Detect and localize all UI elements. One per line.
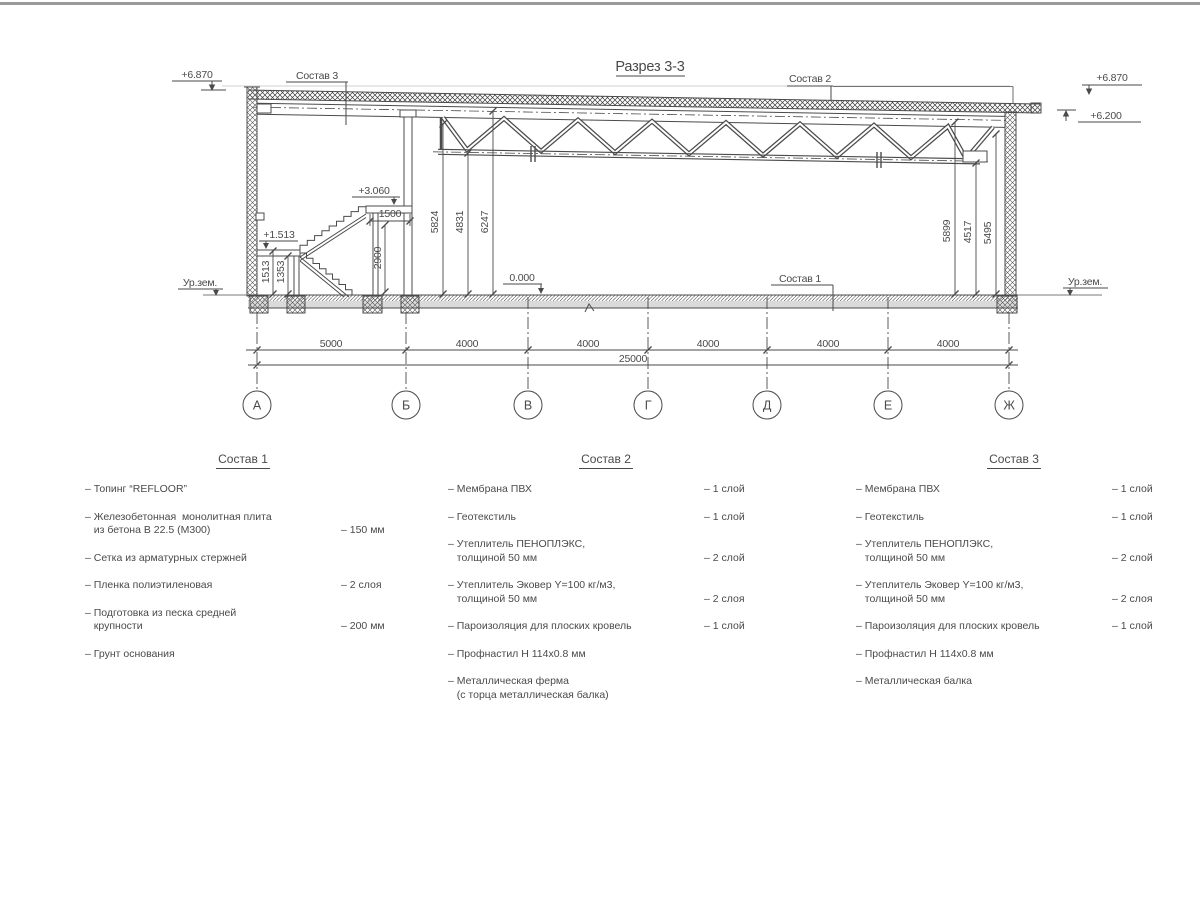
- composition-ref-label: Состав 3: [296, 70, 338, 82]
- spec-item-text: – Железобетонная монолитная плита из бет…: [85, 511, 341, 538]
- spec-item-value: – 200 мм: [341, 620, 385, 634]
- spec-item: – Топинг “REFLOOR”: [85, 483, 401, 497]
- section-drawing: Разрез 3-3: [0, 0, 1200, 448]
- elevation-label: +6.870: [1096, 72, 1128, 84]
- roof-truss: [433, 118, 993, 169]
- left-wall: [244, 87, 260, 296]
- spec-item-value: – 1 слой: [1112, 620, 1153, 634]
- composition-ref-label: Состав 1: [779, 273, 821, 285]
- spec-item-value: – 1 слой: [704, 620, 745, 634]
- spec-item: – Пароизоляция для плоских кровель– 1 сл…: [448, 620, 764, 634]
- spec-column-sostav2: Состав 2 – Мембрана ПВХ– 1 слой– Геотекс…: [448, 452, 764, 716]
- dimension-label: 4000: [577, 338, 600, 350]
- elevation-label: +6.200: [1090, 110, 1122, 122]
- axis-letter: Е: [884, 399, 892, 413]
- foundation-block: [997, 296, 1017, 313]
- spec-item-value: – 1 слой: [1112, 511, 1153, 525]
- spec-item-text: – Сетка из арматурных стержней: [85, 552, 341, 566]
- drawing-title: Разрез 3-3: [615, 59, 685, 76]
- lower-flight-steps: [300, 253, 352, 295]
- spec-item-text: – Металлическая ферма (с торца металличе…: [448, 675, 704, 702]
- spec-item: – Утеплитель ПЕНОПЛЭКС, толщиной 50 мм– …: [856, 538, 1172, 565]
- axis-bubbles: [243, 391, 1023, 419]
- spec-item-text: – Утеплитель Эковер Y=100 кг/м3, толщино…: [448, 579, 704, 606]
- spec-item-value: – 1 слой: [704, 511, 745, 525]
- spec-item: – Геотекстиль– 1 слой: [448, 511, 764, 525]
- spec-item-value: – 2 слоя: [1112, 593, 1153, 607]
- spec-item-value: – 2 слоя: [341, 579, 382, 593]
- roof: [248, 90, 1041, 127]
- spec-item-value: – 1 слой: [704, 483, 745, 497]
- spec-item-text: – Мембрана ПВХ: [856, 483, 1112, 497]
- dimension-label: 4517: [962, 220, 974, 243]
- spec-item: – Подготовка из песка средней крупности–…: [85, 607, 401, 634]
- spec-item: – Грунт основания: [85, 648, 401, 662]
- drawing-texts: +6.870 +6.870 +6.200 +3.060 +1.513 0.000…: [181, 69, 1128, 413]
- spec-item: – Железобетонная монолитная плита из бет…: [85, 511, 401, 538]
- spec-item-text: – Утеплитель Эковер Y=100 кг/м3, толщино…: [856, 579, 1112, 606]
- dimension-label: 5000: [320, 338, 343, 350]
- dimension-label: 4000: [817, 338, 840, 350]
- dimension-label: 4000: [937, 338, 960, 350]
- dimension-label: 5899: [941, 219, 953, 242]
- spec-item-list: – Топинг “REFLOOR”– Железобетонная монол…: [85, 483, 401, 661]
- spec-item-text: – Геотекстиль: [448, 511, 704, 525]
- spec-item-text: – Профнастил Н 114х0.8 мм: [856, 648, 1112, 662]
- spec-item-text: – Подготовка из песка средней крупности: [85, 607, 341, 634]
- composition-ref-label: Состав 2: [789, 73, 831, 85]
- spec-item: – Пароизоляция для плоских кровель– 1 сл…: [856, 620, 1172, 634]
- spec-item-text: – Пароизоляция для плоских кровель: [448, 620, 704, 634]
- dimension-label: 5824: [429, 210, 441, 233]
- dimension-label: 1513: [260, 260, 272, 283]
- spec-item-text: – Геотекстиль: [856, 511, 1112, 525]
- spec-item: – Металлическая ферма (с торца металличе…: [448, 675, 764, 702]
- total-dimension-label: 25000: [619, 353, 648, 365]
- right-wall: [1005, 112, 1016, 296]
- spec-item: – Утеплитель Эковер Y=100 кг/м3, толщино…: [448, 579, 764, 606]
- dimension-label: 1353: [275, 260, 287, 283]
- spec-item-text: – Профнастил Н 114х0.8 мм: [448, 648, 704, 662]
- spec-item: – Профнастил Н 114х0.8 мм: [448, 648, 764, 662]
- spec-item-value: – 150 мм: [341, 524, 385, 538]
- spec-title: Состав 1: [85, 452, 401, 466]
- ground-level-label: Ур.зем.: [183, 277, 217, 289]
- dimension-label: 5495: [982, 221, 994, 244]
- spec-item: – Утеплитель ПЕНОПЛЭКС, толщиной 50 мм– …: [448, 538, 764, 565]
- foundation-block: [250, 296, 268, 313]
- spec-item-text: – Металлическая балка: [856, 675, 1112, 689]
- axis-letter: В: [524, 399, 532, 413]
- spec-item: – Мембрана ПВХ– 1 слой: [856, 483, 1172, 497]
- spec-item-value: – 2 слой: [1112, 552, 1153, 566]
- spec-item-value: – 1 слой: [1112, 483, 1153, 497]
- spec-item: – Утеплитель Эковер Y=100 кг/м3, толщино…: [856, 579, 1172, 606]
- upper-flight-steps: [300, 207, 366, 250]
- spec-title: Состав 2: [448, 452, 764, 466]
- intermediate-landing: [257, 250, 300, 256]
- spec-item-text: – Пленка полиэтиленовая: [85, 579, 341, 593]
- dimension-label: 2900: [372, 246, 384, 269]
- foundation-block: [401, 296, 419, 313]
- spec-item: – Пленка полиэтиленовая– 2 слоя: [85, 579, 401, 593]
- spec-item-text: – Утеплитель ПЕНОПЛЭКС, толщиной 50 мм: [856, 538, 1112, 565]
- spec-item: – Металлическая балка: [856, 675, 1172, 689]
- dimension-label: 4831: [454, 210, 466, 233]
- dimension-label: 4000: [697, 338, 720, 350]
- spec-item-list: – Мембрана ПВХ– 1 слой– Геотекстиль– 1 с…: [448, 483, 764, 702]
- spec-item-text: – Топинг “REFLOOR”: [85, 483, 341, 497]
- elevation-label: +6.870: [181, 69, 213, 81]
- spec-item: – Мембрана ПВХ– 1 слой: [448, 483, 764, 497]
- page-title: Разрез 3-3: [615, 59, 684, 75]
- spec-item-text: – Пароизоляция для плоских кровель: [856, 620, 1112, 634]
- dimension-label: 6247: [479, 210, 491, 233]
- axis-letter: Ж: [1003, 399, 1015, 413]
- elevation-label: +3.060: [358, 185, 390, 197]
- truss-bearing: [963, 151, 987, 162]
- spec-item-list: – Мембрана ПВХ– 1 слой– Геотекстиль– 1 с…: [856, 483, 1172, 689]
- ground-level-label: Ур.зем.: [1068, 276, 1102, 288]
- spec-item: – Сетка из арматурных стержней: [85, 552, 401, 566]
- axis-letter: Г: [645, 399, 652, 413]
- sheet-border: [0, 2, 1200, 5]
- spec-item: – Профнастил Н 114х0.8 мм: [856, 648, 1172, 662]
- spec-item-text: – Грунт основания: [85, 648, 341, 662]
- foundation-block: [363, 296, 382, 313]
- axis-dimensions: [246, 297, 1018, 391]
- spec-item-value: – 2 слоя: [704, 593, 745, 607]
- axis-letter: Б: [402, 399, 410, 413]
- floor-slab: [203, 295, 1102, 313]
- spec-column-sostav3: Состав 3 – Мембрана ПВХ– 1 слой– Геотекс…: [856, 452, 1172, 703]
- drawing-sheet: { "drawing": { "title": "Разрез 3-3", "a…: [0, 0, 1200, 900]
- spec-item: – Геотекстиль– 1 слой: [856, 511, 1172, 525]
- dimension-label: 1500: [379, 208, 402, 220]
- axis-letter: А: [253, 399, 262, 413]
- spec-item-value: – 2 слой: [704, 552, 745, 566]
- spec-column-sostav1: Состав 1 – Топинг “REFLOOR”– Железобетон…: [85, 452, 401, 675]
- axis-letter: Д: [763, 399, 772, 413]
- elevation-label: 0.000: [509, 272, 535, 284]
- elevation-label: +1.513: [263, 229, 295, 241]
- inner-column: [400, 110, 416, 295]
- spec-title: Состав 3: [856, 452, 1172, 466]
- foundation-block: [287, 296, 305, 313]
- spec-item-text: – Мембрана ПВХ: [448, 483, 704, 497]
- dimension-label: 4000: [456, 338, 479, 350]
- spec-item-text: – Утеплитель ПЕНОПЛЭКС, толщиной 50 мм: [448, 538, 704, 565]
